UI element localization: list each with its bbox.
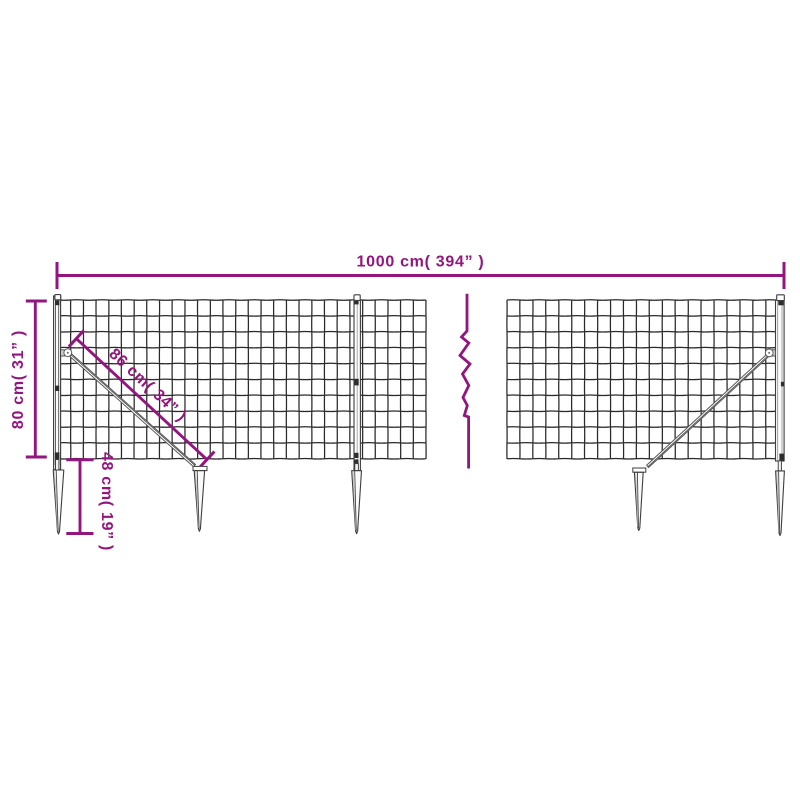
svg-text:1000 cm( 394” ): 1000 cm( 394” ) <box>357 254 485 271</box>
svg-text:48 cm( 19” ): 48 cm( 19” ) <box>98 452 115 551</box>
svg-text:80 cm( 31” ): 80 cm( 31” ) <box>10 330 27 429</box>
